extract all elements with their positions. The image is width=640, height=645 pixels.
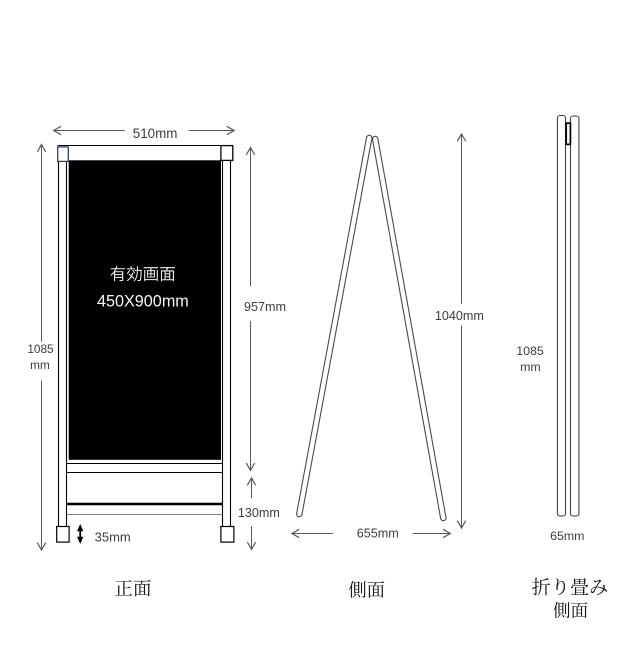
svg-text:mm: mm [30, 358, 50, 372]
svg-text:65mm: 65mm [550, 529, 584, 543]
svg-text:1040mm: 1040mm [435, 309, 484, 323]
svg-text:655mm: 655mm [357, 527, 399, 541]
svg-text:1085: 1085 [27, 342, 54, 356]
svg-text:957mm: 957mm [244, 300, 286, 314]
svg-text:510mm: 510mm [133, 126, 178, 141]
svg-text:1085: 1085 [516, 344, 544, 358]
svg-text:mm: mm [520, 360, 541, 374]
svg-text:130mm: 130mm [238, 506, 280, 520]
svg-text:450X900mm: 450X900mm [97, 293, 189, 311]
svg-text:35mm: 35mm [95, 530, 131, 545]
